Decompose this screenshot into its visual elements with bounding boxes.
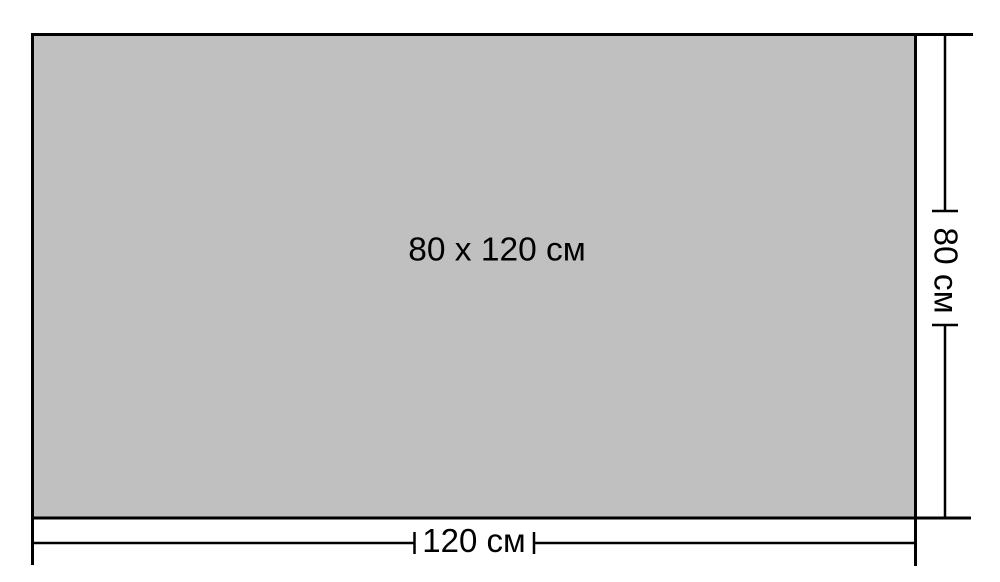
svg-text:80 x 120 см: 80 x 120 см [408,232,586,269]
svg-text:120 см: 120 см [422,522,525,559]
svg-text:80 см: 80 см [927,227,964,313]
